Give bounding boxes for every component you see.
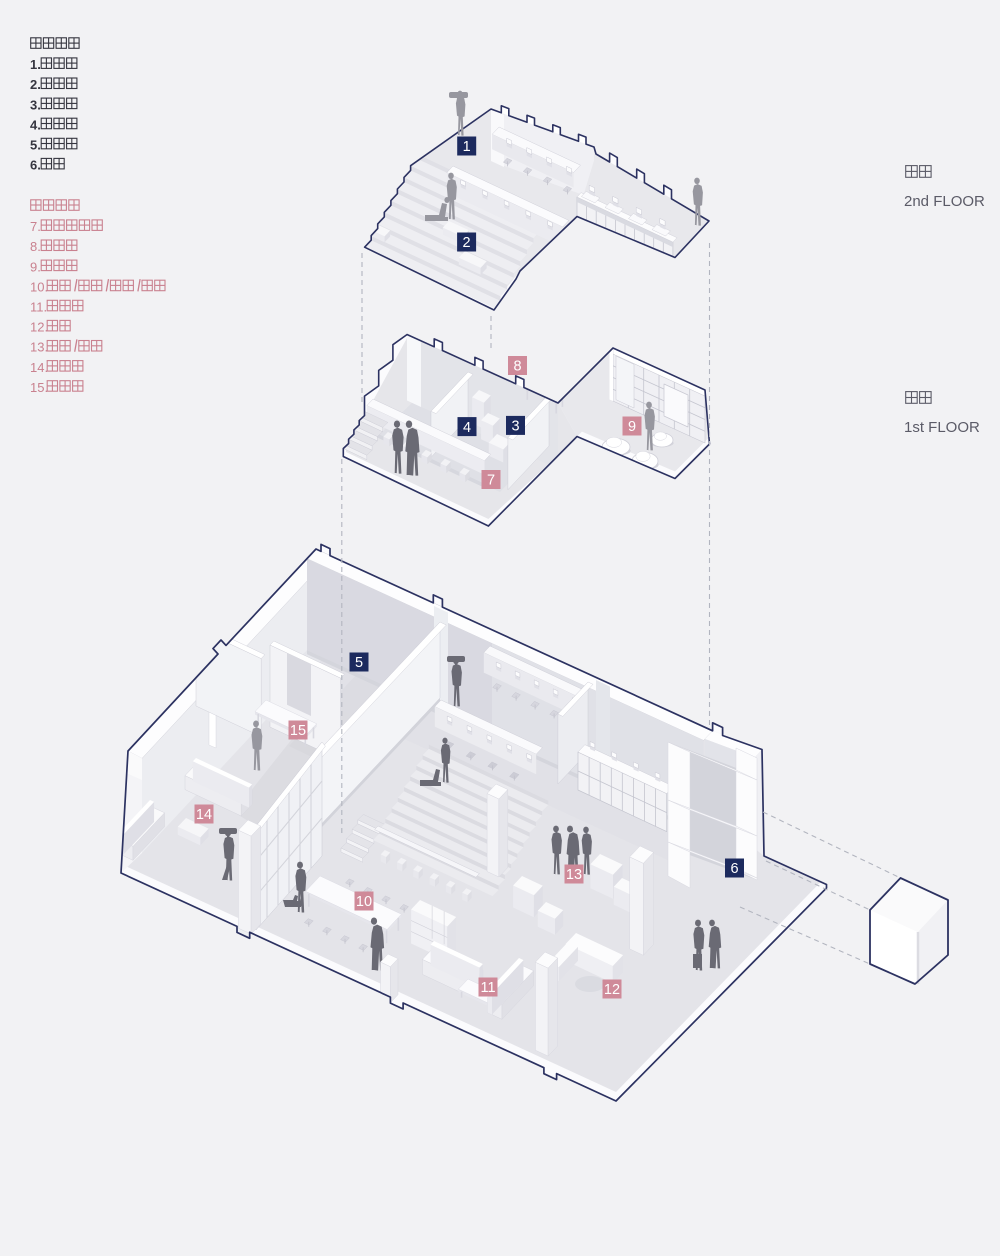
svg-text:11: 11 <box>480 980 495 996</box>
svg-text:3: 3 <box>511 419 519 435</box>
svg-text:9: 9 <box>628 419 636 435</box>
svg-text:7.: 7. <box>30 219 41 234</box>
svg-text:13: 13 <box>566 867 582 883</box>
svg-text:8: 8 <box>513 359 521 375</box>
svg-text:2.: 2. <box>30 77 41 92</box>
svg-text:10: 10 <box>356 894 372 910</box>
svg-text:9.: 9. <box>30 259 41 274</box>
svg-text:5.: 5. <box>30 138 41 153</box>
svg-text:1: 1 <box>463 139 471 155</box>
svg-text:1.: 1. <box>30 57 41 72</box>
svg-text:2nd FLOOR: 2nd FLOOR <box>904 193 985 210</box>
svg-text:8.: 8. <box>30 239 41 254</box>
svg-text:14.: 14. <box>30 360 48 375</box>
svg-text:13.: 13. <box>30 340 48 355</box>
svg-text:4: 4 <box>463 420 471 436</box>
svg-text:12: 12 <box>604 982 620 998</box>
svg-text:4.: 4. <box>30 117 41 132</box>
svg-text:6: 6 <box>730 861 738 877</box>
svg-text:15.: 15. <box>30 380 48 395</box>
svg-text:3.: 3. <box>30 97 41 112</box>
svg-text:12.: 12. <box>30 320 48 335</box>
svg-text:1st FLOOR: 1st FLOOR <box>904 419 980 436</box>
svg-text:15: 15 <box>290 723 306 739</box>
svg-text:6.: 6. <box>30 158 41 173</box>
svg-text:2: 2 <box>463 235 471 251</box>
svg-text:7: 7 <box>487 473 495 489</box>
svg-text:14: 14 <box>196 807 212 823</box>
svg-text:11.: 11. <box>30 300 47 315</box>
svg-text:10.: 10. <box>30 279 48 294</box>
svg-text:5: 5 <box>355 655 363 671</box>
